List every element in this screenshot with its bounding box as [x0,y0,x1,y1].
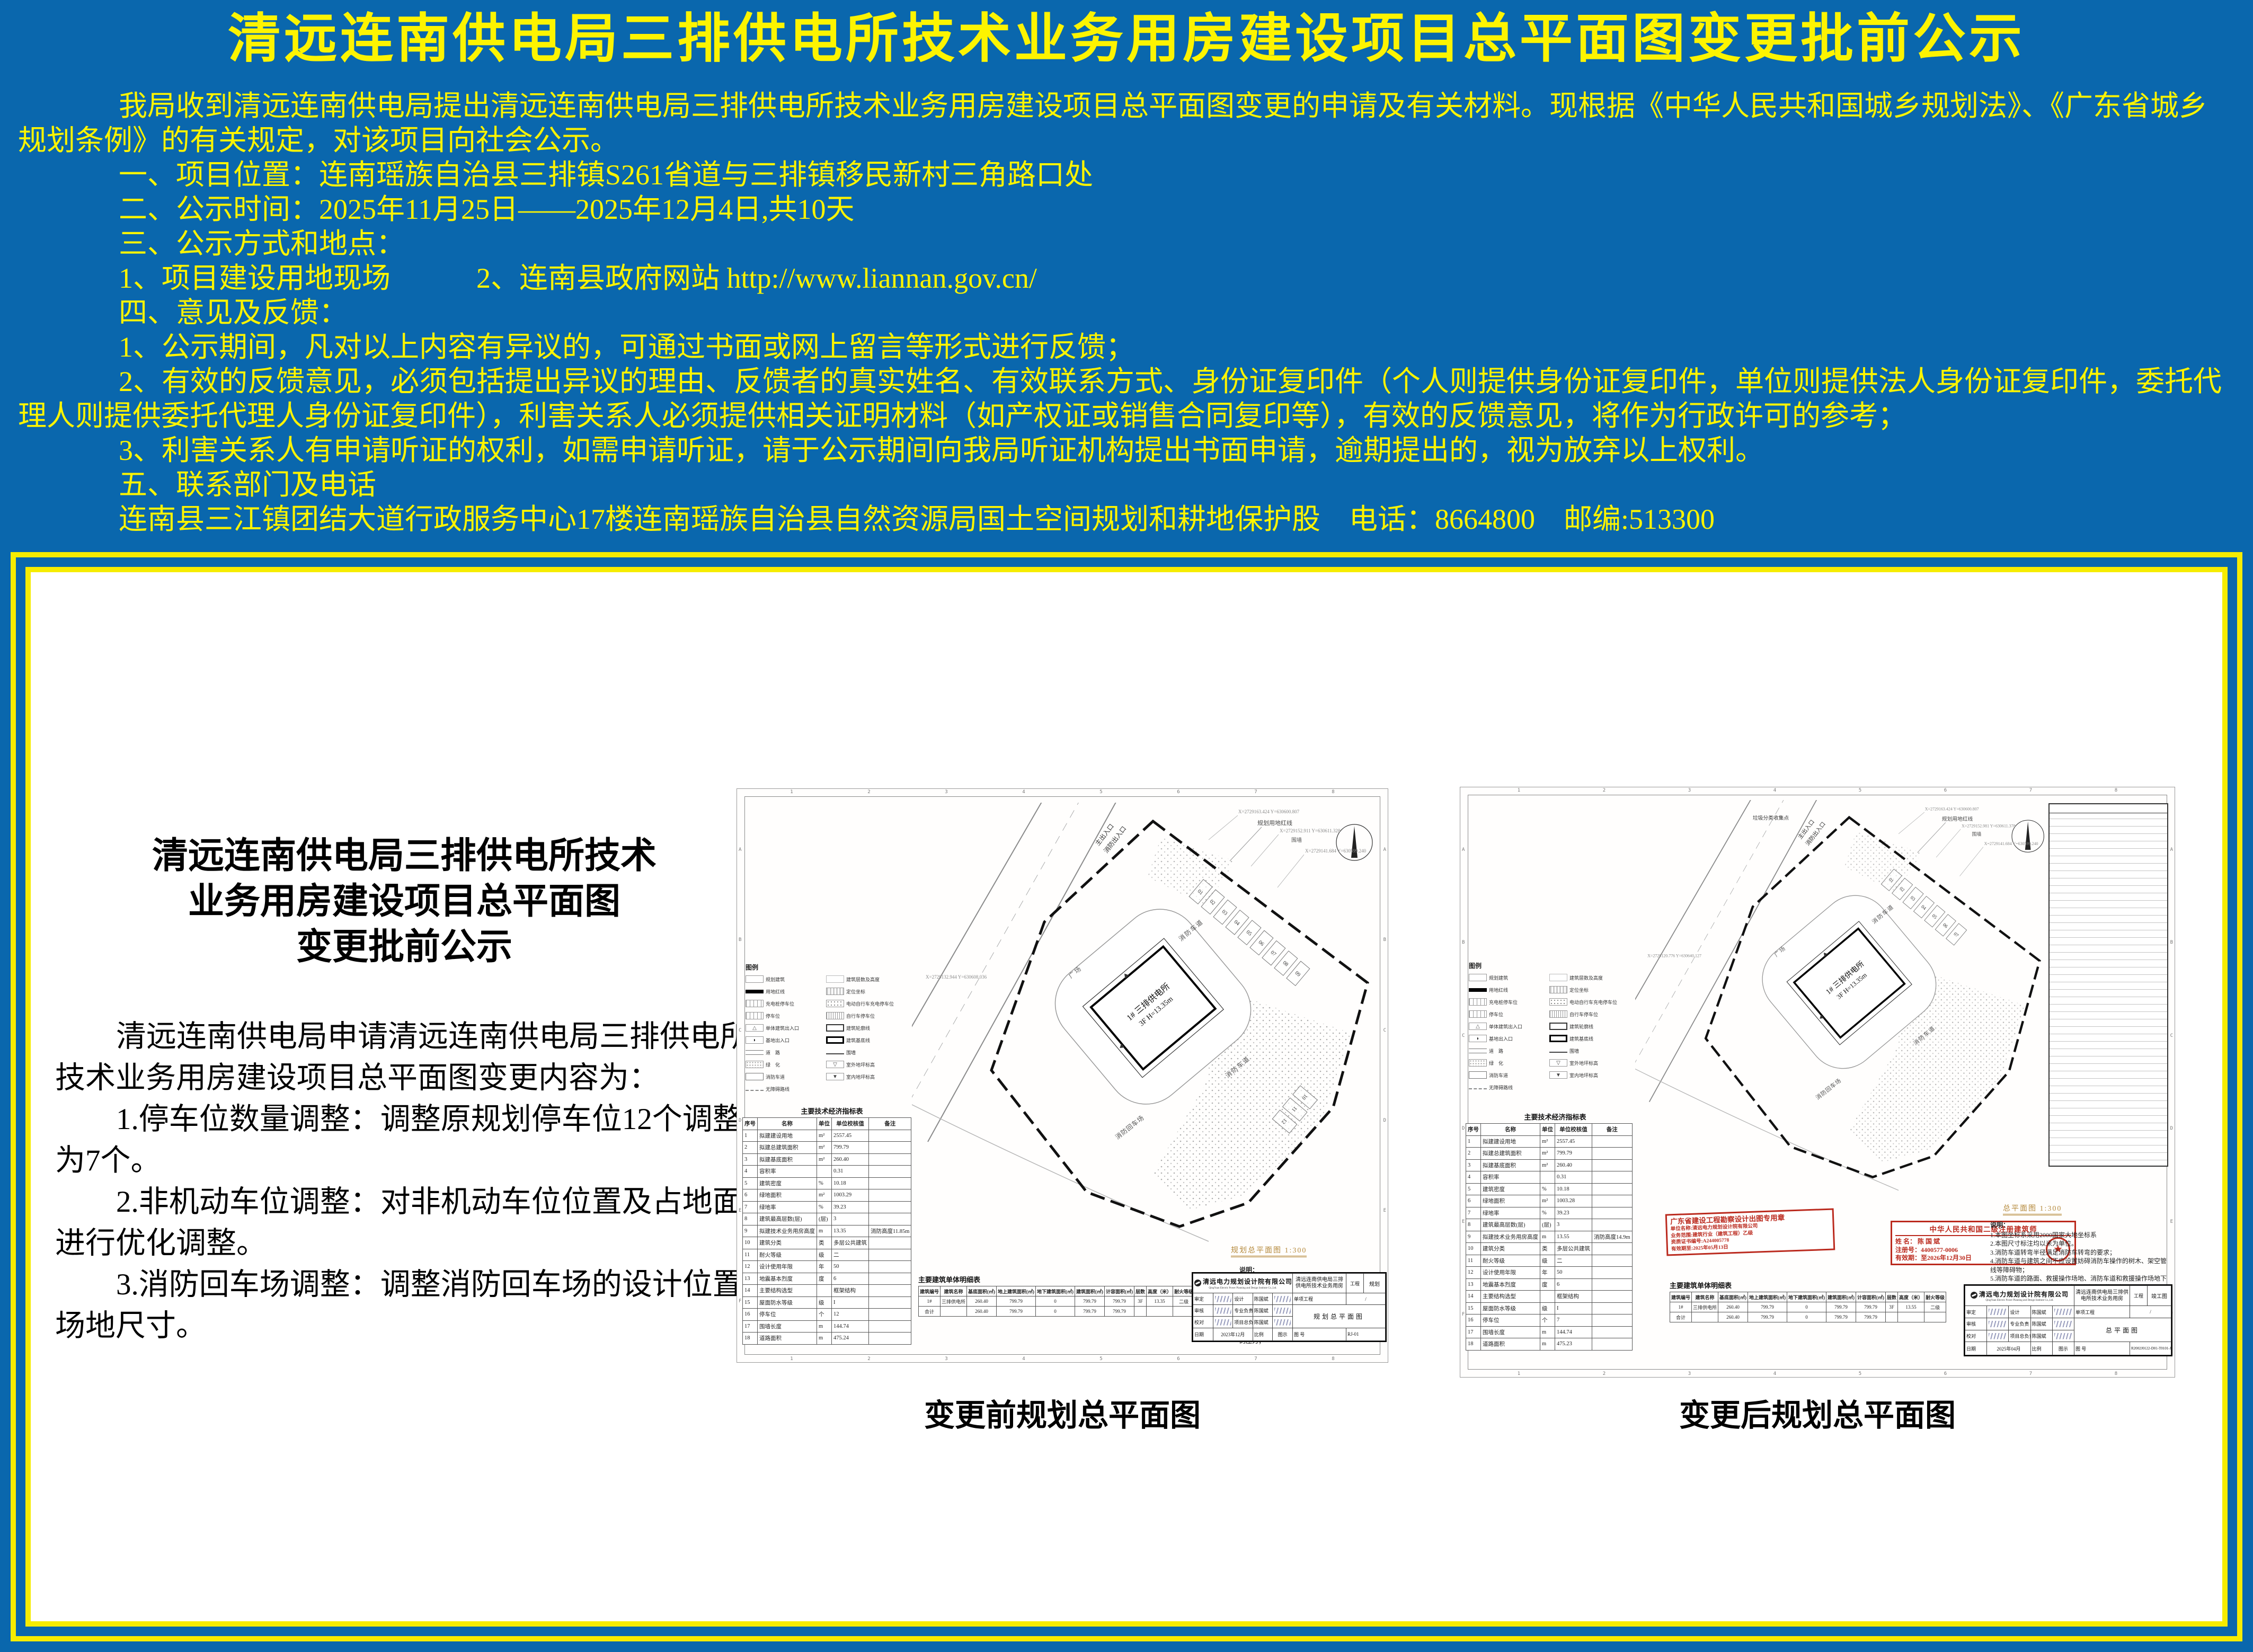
table-cell: 39.23 [1555,1207,1592,1219]
scale-field-value: 图示 [2052,1342,2074,1355]
grid-col-label: 3 [945,789,947,795]
table-cell: % [1540,1207,1555,1219]
plan-notes: 说明： 1.本图坐标系采用2000国家大地坐标系2.本图尺寸标注均以米为单位。3… [1990,1221,2167,1292]
grid-col-label: 8 [1332,789,1334,795]
table-row: 3拟建基底面积m²260.40 [1466,1159,1633,1171]
table-cell: 地震基本烈度 [1481,1278,1540,1291]
grid-col-label: 3 [1688,788,1691,793]
table-cell: 18 [1466,1338,1481,1351]
design-stage: 竣工图 [2148,1286,2171,1306]
table-header-cell: 建筑面积(㎡) [1075,1286,1105,1296]
table-cell: 建筑分类 [1481,1243,1540,1255]
legend-label: 建筑层数及高度 [846,976,880,983]
legend-item: 充电桩停车位 [746,998,824,1009]
notice-item: 五、联系部门及电话 [18,468,2235,502]
table-header-cell: 建筑面积(㎡) [1826,1292,1856,1302]
table-cell: 屋面防水等级 [758,1296,817,1309]
table-cell: 799.79 [1105,1307,1134,1317]
plan-notes-list: 1.本图坐标系采用2000国家大地坐标系2.本图尺寸标注均以米为单位。3.消防车… [1990,1231,2167,1292]
table-cell: 0 [1036,1307,1075,1317]
line-swatch-icon [1549,1049,1567,1053]
table-cell [1134,1307,1147,1317]
coordinate-label: X=2729120.776 Y=630640.127 [1647,953,1701,958]
table-cell: 建筑最高层数(层) [758,1213,817,1225]
legend-label: 基地出入口 [766,1037,790,1044]
grid-row-label: D [2170,1126,2173,1131]
table-row: 18道路面积m475.23 [1466,1338,1633,1351]
table-row: 7绿地率%39.23 [1466,1207,1633,1219]
table-header-cell: 层数 [1886,1292,1898,1302]
table-cell: 6 [1466,1195,1481,1207]
table-header-cell: 计容面积(㎡) [1105,1286,1134,1296]
grid-col-label: 6 [1177,789,1179,795]
table-cell: 12 [832,1309,869,1321]
grid-col-label: 8 [1332,1356,1334,1362]
legend-item: 建筑基底线 [826,1035,906,1045]
table-cell: 合计 [919,1307,941,1317]
grid-col-label: 1 [1518,788,1520,793]
box-swatch-icon [746,975,764,983]
caption-after: 变更后规划总平面图 [1460,1390,2175,1435]
table-cell: m² [817,1189,832,1202]
table-cell: 10 [1466,1243,1481,1255]
date-label: 日期 [1193,1328,1213,1340]
grid-col-label: 5 [1859,788,1861,793]
table-cell: 799.79 [1075,1296,1105,1307]
notice-item: 一、项目位置：连南瑶族自治县三排镇S261省道与三排镇移民新村三角路口处 [18,158,2235,192]
project-tag: 工程 [1346,1274,1364,1293]
table-row: 合计260.40799.790799.79799.79 [919,1307,1195,1317]
table-row: 4容积率0.31 [1466,1171,1633,1184]
legend-item: 无障碍路线 [1469,1082,1547,1093]
table-cell: 停车位 [758,1309,817,1321]
table-cell: % [817,1177,832,1189]
legend-item: 建筑基底线 [1549,1033,1629,1044]
drawing-name: 规划总平面图 [1293,1305,1386,1328]
designer-name: 陈国斌 [1253,1305,1273,1317]
table-header-cell: 名称 [758,1118,817,1130]
table-row: 8建筑最高层数(层)(层)3 [743,1213,911,1225]
role-label: 专业负责 [2009,1318,2030,1330]
scale-label: 总平面图 1:300 [2003,1203,2062,1215]
table-cell: 类 [1540,1243,1555,1255]
legend-label: 围墙 [1569,1047,1579,1054]
table-cell: 7 [743,1201,758,1213]
table-cell: 级 [1540,1255,1555,1267]
table-cell [869,1142,911,1154]
table-cell: 1003.28 [1555,1195,1592,1207]
table-cell: 13.55 [1555,1231,1592,1243]
building-table-block: 主要建筑单体明细表 建筑编号建筑名称基底面积(㎡)地上建筑面积(㎡)地下建筑面积… [918,1274,1195,1317]
table-cell: 144.74 [832,1320,869,1333]
drawing-no-value: RJ-01 [1346,1328,1386,1340]
table-cell: 拟建总建筑面积 [1481,1148,1540,1160]
grid-letters-left: ABCDEF [1462,803,1465,1361]
table-row: 17围墙长度m144.74 [1466,1326,1633,1338]
leader-line [1209,815,1238,840]
table-row: 18道路面积m475.24 [743,1333,911,1345]
design-institute-cell: 清远电力规划设计院有限公司 QingYuan Electric Power Pl… [1193,1274,1293,1293]
legend-item: 充电桩停车位 [1469,997,1547,1007]
notice-body: 我局收到清远连南供电局提出清远连南供电局三排供电所技术业务用房建设项目总平面图变… [18,89,2235,537]
table-cell: 个 [1540,1315,1555,1327]
stall-swatch-icon [1469,998,1487,1006]
table-header-cell: 高度（米） [1147,1286,1173,1296]
role-label: 设计 [2009,1306,2030,1318]
table-cell [1692,1312,1718,1322]
panel-heading-line: 业务用房建设项目总平面图 [52,878,757,924]
change-item: 1.停车位数量调整：调整原规划停车位12个调整后为7个。 [55,1099,780,1182]
table-cell [869,1130,911,1142]
table-cell: 799.79 [997,1307,1036,1317]
table-cell: 5 [1466,1183,1481,1195]
plan-note: 2.本图尺寸标注均以米为单位。 [1990,1239,2167,1248]
table-cell: 17 [1466,1326,1481,1338]
table-row: 9拟建技术业务用房高度m13.55消防高度14.9m [1466,1231,1633,1243]
table-cell: 拟建技术业务用房高度 [758,1225,817,1237]
wall-label: 围墙 [1291,837,1302,843]
level2-swatch-icon [826,1073,844,1080]
panel-heading-line: 变更批前公示 [52,924,757,970]
leader-line [1278,855,1304,887]
table-cell: 3 [1555,1219,1592,1231]
panel-heading: 清远连南供电局三排供电所技术 业务用房建设项目总平面图 变更批前公示 [52,833,757,970]
table-header-cell: 单位 [817,1118,832,1130]
legend-item: 规划建筑 [1469,972,1547,983]
table-cell: 10.18 [1555,1183,1592,1195]
legend-item: 绿 化 [746,1059,824,1070]
table-header-cell: 名称 [1481,1124,1540,1136]
table-cell [1540,1291,1555,1303]
page-title: 清远连南供电局三排供电所技术业务用房建设项目总平面图变更批前公示 [0,8,2253,69]
table-cell: 10.18 [832,1177,869,1189]
table-cell [1592,1243,1633,1255]
legend-label: 基地出入口 [1489,1035,1513,1042]
table-header-cell: 层数 [1134,1286,1147,1296]
table-cell [1924,1312,1946,1322]
drawing-name: 总平面图 [2074,1318,2171,1342]
waste-collection-label: 垃圾分类收集点 [1753,814,1789,821]
table-cell [1592,1338,1633,1351]
legend-grid: 规划建筑建筑层数及高度用地红线定位坐标充电桩停车位电动自行车充电停车位停车位自行… [1469,972,1629,1093]
grid-col-label: 4 [1022,789,1025,795]
legend-label: 建筑基底线 [1569,1035,1593,1042]
table-cell: m [817,1333,832,1345]
ticksbox-swatch-icon [826,1012,844,1019]
legend-item: 无障碍路线 [746,1083,824,1094]
signature-scribble [2052,1330,2074,1342]
table-cell [869,1261,911,1273]
table-cell: 绿地面积 [1481,1195,1540,1207]
indicator-table-block: 主要技术经济指标表 序号名称单位单位校核值备注1拟建建设用地m²2557.452… [1466,1112,1645,1351]
table-cell: 1003.29 [832,1189,869,1202]
legend-item: 建筑轮廓线 [826,1023,906,1033]
legend-item: 室外地坪标高 [1549,1058,1629,1068]
table-row: 15屋面防水等级级I [1466,1302,1633,1315]
grid-col-label: 7 [1254,789,1257,795]
table-cell: 道路面积 [1481,1338,1540,1351]
fire-turnaround-label: 消防回车场 [1814,1077,1842,1102]
table-cell: 9 [743,1225,758,1237]
table-cell: 260.40 [967,1296,997,1307]
road-centerline [1635,800,1786,1083]
signature-scribble [2052,1306,2074,1318]
designer-name: 陈国斌 [2030,1330,2052,1342]
company-name-en: QingYuan Electric Power Planning and Des… [1199,1286,1287,1289]
table-cell: 799.79 [1555,1148,1592,1160]
legend-item: 自行车停车位 [1549,1009,1629,1019]
table-cell: 475.23 [1555,1338,1592,1351]
table-row: 5建筑密度%10.18 [743,1177,911,1189]
data-table: 序号名称单位单位校核值备注1拟建建设用地m²2557.452拟建总建筑面积m²7… [1466,1123,1633,1351]
table-cell: m [817,1320,832,1333]
outline2-swatch-icon [1549,1035,1567,1042]
table-cell: 260.40 [967,1307,997,1317]
table-row: 10建筑分类类多层公共建筑 [743,1237,911,1249]
designer-name: 陈国斌 [2030,1318,2052,1330]
table-cell: 260.40 [1718,1312,1748,1322]
signature-scribble [2052,1318,2074,1330]
legend: 图例 规划建筑建筑层数及高度用地红线定位坐标充电桩停车位电动自行车充电停车位停车… [1469,961,1629,1093]
table-cell: 年 [817,1261,832,1273]
table-cell: 2 [1466,1148,1481,1160]
design-institute-cell: 清远电力规划设计院有限公司 QingYuan Electric Power Pl… [1965,1286,2074,1306]
table-cell [1592,1148,1633,1160]
legend-label: 绿 化 [1489,1060,1503,1067]
legend-item: 建筑轮廓线 [1549,1021,1629,1032]
legend-item: 消防车道 [746,1071,824,1082]
design-stage: 规划 [1364,1274,1386,1293]
table-cell: 13.35 [832,1225,869,1237]
legend-label: 单体建筑出入口 [1489,1023,1522,1030]
road-swatch-icon [746,1050,764,1055]
design-institute-stamp: 广东省建设工程勘察设计出图专用章单位名称:清远电力规划设计院有限公司业务范围:建… [1665,1208,1835,1256]
level2-swatch-icon [1549,1071,1567,1079]
grid-col-label: 8 [2115,788,2117,793]
table-cell [1592,1278,1633,1291]
table-cell: 绿地面积 [758,1189,817,1202]
legend-label: 电动自行车充电停车位 [846,1000,894,1007]
table-cell: 799.79 [1105,1296,1134,1307]
table-cell: 多层公共建筑 [1555,1243,1592,1255]
table-cell: m² [1540,1195,1555,1207]
table-cell: 9 [1466,1231,1481,1243]
firelane-swatch-icon [1469,1071,1487,1079]
table-cell: 6 [1555,1278,1592,1291]
thickline-swatch-icon [1469,986,1487,993]
coordinate-label: X=2729163.424 Y=630600.807 [1925,806,1979,811]
stall-swatch-icon [746,1000,764,1007]
building-table: 建筑编号建筑名称基底面积(㎡)地上建筑面积(㎡)地下建筑面积(㎡)建筑面积(㎡)… [918,1286,1195,1317]
leader-line [1959,847,1983,876]
company-name-en: QingYuan Electric Power Planning and Des… [1972,1299,2068,1302]
white-panel-inner: 清远连南供电局三排供电所技术 业务用房建设项目总平面图 变更批前公示 清远连南供… [25,567,2228,1627]
table-cell [869,1273,911,1285]
table-cell [1592,1326,1633,1338]
building-table-title: 主要建筑单体明细表 [1670,1280,1946,1290]
table-cell: 度 [817,1273,832,1285]
legend: 图例 规划建筑建筑层数及高度用地红线定位坐标充电桩停车位电动自行车充电停车位停车… [746,963,906,1094]
panel-body: 清远连南供电局申请清远连南供电局三排供电所技术业务用房建设项目总平面图变更内容为… [55,1016,780,1347]
table-cell: 4 [743,1166,758,1178]
role-label: 项目总负责 [2009,1330,2030,1342]
signature-scribble [1273,1317,1293,1328]
legend-item: 电动自行车充电停车位 [1549,997,1629,1007]
table-cell: 个 [817,1309,832,1321]
sub-project-label: 单项工程 [1293,1293,1346,1305]
table-cell: m [1540,1338,1555,1351]
table-row: 10建筑分类类多层公共建筑 [1466,1243,1633,1255]
table-cell: 0 [1036,1296,1075,1307]
legend-label: 绿 化 [766,1061,780,1068]
table-cell: 二 [832,1249,869,1261]
table-cell [869,1333,911,1345]
legend-item: 消防车道 [1469,1070,1547,1080]
legend-label: 停车位 [766,1012,780,1019]
table-cell: 17 [743,1320,758,1333]
legend-item: 室内地坪标高 [826,1071,906,1082]
legend-label: 道 路 [1489,1047,1503,1054]
table-cell: m² [817,1142,832,1154]
table-cell: m² [1540,1148,1555,1160]
table-cell: 8 [743,1213,758,1225]
role-label: 专业负责 [1233,1305,1253,1317]
legend-label: 围墙 [846,1049,856,1056]
table-cell: 围墙长度 [758,1320,817,1333]
legend-item: 建筑层数及高度 [1549,972,1629,983]
table-cell: 15 [743,1296,758,1309]
table-cell: m [1540,1326,1555,1338]
table-cell: 50 [832,1261,869,1273]
table-row: 12设计使用年限年50 [1466,1267,1633,1279]
legend-title: 图例 [746,963,906,972]
legend-label: 消防车道 [1489,1072,1508,1079]
road-swatch-icon [1469,1049,1487,1053]
table-cell: 3 [743,1153,758,1166]
grid-row-label: E [1462,1219,1465,1224]
grid-col-label: 5 [1099,789,1102,795]
table-cell: 年 [1540,1267,1555,1279]
table-cell: 10 [743,1237,758,1249]
designer-name: 陈国斌 [1253,1317,1273,1328]
table-cell [869,1153,911,1166]
legend-label: 充电桩停车位 [766,1000,794,1007]
indicator-table-block: 主要技术经济指标表 序号名称单位单位校核值备注1拟建建设用地m²2557.452… [742,1106,921,1345]
table-cell [869,1296,911,1309]
notice-intro: 我局收到清远连南供电局提出清远连南供电局三排供电所技术业务用房建设项目总平面图变… [18,89,2235,158]
table-cell: 799.79 [1826,1312,1856,1322]
table-cell: 道路面积 [758,1333,817,1345]
table-cell: 260.40 [1718,1302,1748,1312]
signature-scribble [1987,1318,2009,1330]
coordinate-label: X=2729152.911 Y=630611.328 [1280,828,1341,833]
grid-row-label: B [2170,940,2173,945]
legend-item: 道 路 [1469,1045,1547,1056]
grid-numbers-bottom: 12345678 [753,1356,1372,1362]
grid-row-label: F [1462,1312,1465,1317]
table-cell [869,1166,911,1178]
table-cell: 1# [1670,1302,1692,1312]
siteplan-svg-wrap: 1# 三排供电所 3F H=13.35m 01020304050607 主出入口… [1635,800,2054,1195]
table-cell [1592,1302,1633,1315]
table-header-cell: 计容面积(㎡) [1856,1292,1886,1302]
table-cell: 拟建基底面积 [758,1153,817,1166]
legend-label: 室外地坪标高 [1569,1060,1598,1067]
building-table-block: 主要建筑单体明细表 建筑编号建筑名称基底面积(㎡)地上建筑面积(㎡)地下建筑面积… [1670,1280,1946,1322]
table-cell: 13 [1466,1278,1481,1291]
table-header-cell: 建筑编号 [1670,1292,1692,1302]
table-cell: 799.79 [997,1296,1036,1307]
grid-row-label: C [739,1028,741,1033]
legend-label: 规划建筑 [1489,974,1508,981]
table-cell: I [1555,1302,1592,1315]
table-cell: % [817,1201,832,1213]
dots-swatch-icon [746,1061,764,1068]
grid-numbers-top: 12345678 [1476,788,2159,793]
grid-numbers-top: 12345678 [753,789,1372,795]
legend-grid: 规划建筑建筑层数及高度用地红线定位坐标充电桩停车位电动自行车充电停车位停车位自行… [746,974,906,1094]
table-cell [869,1285,911,1297]
company-name: 清远电力规划设计院有限公司 [1979,1291,2069,1298]
siteplan-drawing: 1# 三排供电所 3F H=13.35m 010203040506070809 … [912,803,1383,1242]
table-row: 7绿地率%39.23 [743,1201,911,1213]
table-cell: 799.79 [1856,1312,1886,1322]
table-cell: 2557.45 [832,1130,869,1142]
scale-label: 规划总平面图 1:300 [1231,1245,1307,1257]
table-cell [1592,1291,1633,1303]
table-cell: 14 [1466,1291,1481,1303]
table-cell: 13.55 [1898,1302,1924,1312]
grid-col-label: 6 [1177,1356,1179,1362]
table-cell: 设计使用年限 [758,1261,817,1273]
grid-col-label: 1 [1518,1371,1520,1376]
legend-label: 电动自行车充电停车位 [1569,999,1617,1006]
table-cell: 799.79 [1826,1302,1856,1312]
table-header-cell: 地下建筑面积(㎡) [1787,1292,1826,1302]
table-row: 4容积率0.31 [743,1166,911,1178]
grid-col-label: 2 [1603,788,1606,793]
grid-row-label: D [1383,1118,1386,1123]
table-cell: 级 [817,1249,832,1261]
legend-label: 用地红线 [1489,987,1508,993]
sub-project-value: / [2130,1306,2171,1318]
project-tag: 工程 [2130,1286,2148,1306]
notice-item: 三、公示方式和地点： [18,227,2235,261]
outline2-swatch-icon [826,1036,844,1044]
road-edge [1635,800,1753,1064]
table-cell: 0.31 [832,1166,869,1178]
table-cell: 8 [1466,1219,1481,1231]
leader-line [1936,829,1961,857]
ticksbox-swatch-icon [1549,1010,1567,1018]
table-row: 9拟建技术业务用房高度m13.35消防高度11.85m [743,1225,911,1237]
table-cell: 建筑密度 [758,1177,817,1189]
panel-body-intro: 清远连南供电局申请清远连南供电局三排供电所技术业务用房建设项目总平面图变更内容为… [55,1016,780,1099]
table-cell: 799.79 [1748,1312,1787,1322]
table-row: 12设计使用年限年50 [743,1261,911,1273]
legend-label: 室内地坪标高 [1569,1072,1598,1079]
table-cell: 消防高度11.85m [869,1225,911,1237]
table-cell: 16 [1466,1315,1481,1327]
legend-item: 用地红线 [746,986,824,997]
table-cell: 144.74 [1555,1326,1592,1338]
grid-row-label: B [739,937,741,943]
coordinate-label: X=2729141.684 Y=630599.240 [1984,841,2038,846]
table-cell: 6 [743,1189,758,1202]
table-cell: 合计 [1670,1312,1692,1322]
notice-poster: 清远连南供电局三排供电所技术业务用房建设项目总平面图变更批前公示 我局收到清远连… [0,0,2253,1652]
dots-swatch-icon [1469,1059,1487,1067]
